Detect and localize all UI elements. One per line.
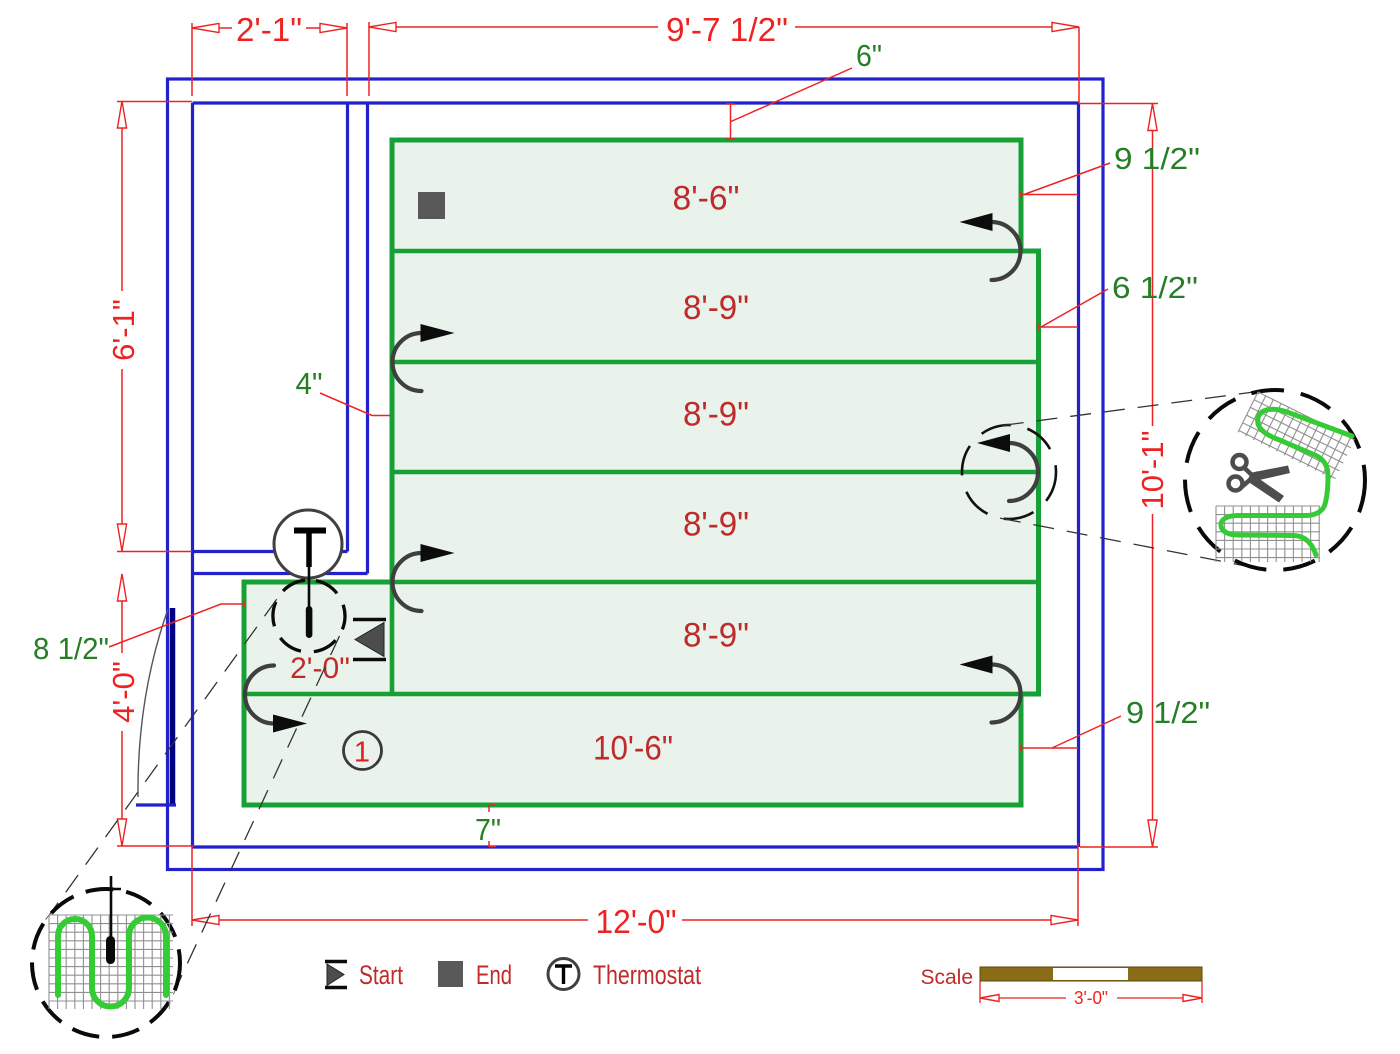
svg-text:8'-9": 8'-9" (683, 396, 749, 434)
svg-text:Scale: Scale (920, 966, 973, 989)
svg-text:4'-0": 4'-0" (106, 661, 141, 723)
svg-text:8'-6": 8'-6" (673, 180, 740, 218)
svg-text:8'-9": 8'-9" (683, 289, 749, 327)
svg-text:6 1/2": 6 1/2" (1112, 270, 1198, 305)
svg-text:8 1/2": 8 1/2" (33, 631, 109, 666)
svg-text:Thermostat: Thermostat (593, 960, 701, 990)
svg-text:8'-9": 8'-9" (683, 617, 749, 655)
svg-text:1: 1 (354, 737, 370, 769)
svg-text:2'-1": 2'-1" (236, 11, 302, 48)
svg-text:6": 6" (856, 38, 882, 73)
svg-text:7": 7" (475, 812, 501, 847)
svg-text:6'-1": 6'-1" (106, 299, 141, 361)
svg-text:Start: Start (359, 960, 403, 990)
svg-text:10'-6": 10'-6" (593, 730, 673, 768)
svg-text:End: End (476, 960, 512, 990)
svg-text:4": 4" (296, 366, 323, 401)
svg-text:8'-9": 8'-9" (683, 506, 749, 544)
svg-text:2'-0": 2'-0" (290, 652, 350, 685)
svg-text:9 1/2": 9 1/2" (1126, 695, 1210, 730)
svg-text:12'-0": 12'-0" (596, 903, 677, 940)
svg-text:9'-7 1/2": 9'-7 1/2" (666, 11, 788, 48)
svg-text:3'-0": 3'-0" (1074, 988, 1108, 1008)
svg-text:10'-1": 10'-1" (1135, 431, 1170, 510)
svg-text:9 1/2": 9 1/2" (1114, 141, 1200, 176)
